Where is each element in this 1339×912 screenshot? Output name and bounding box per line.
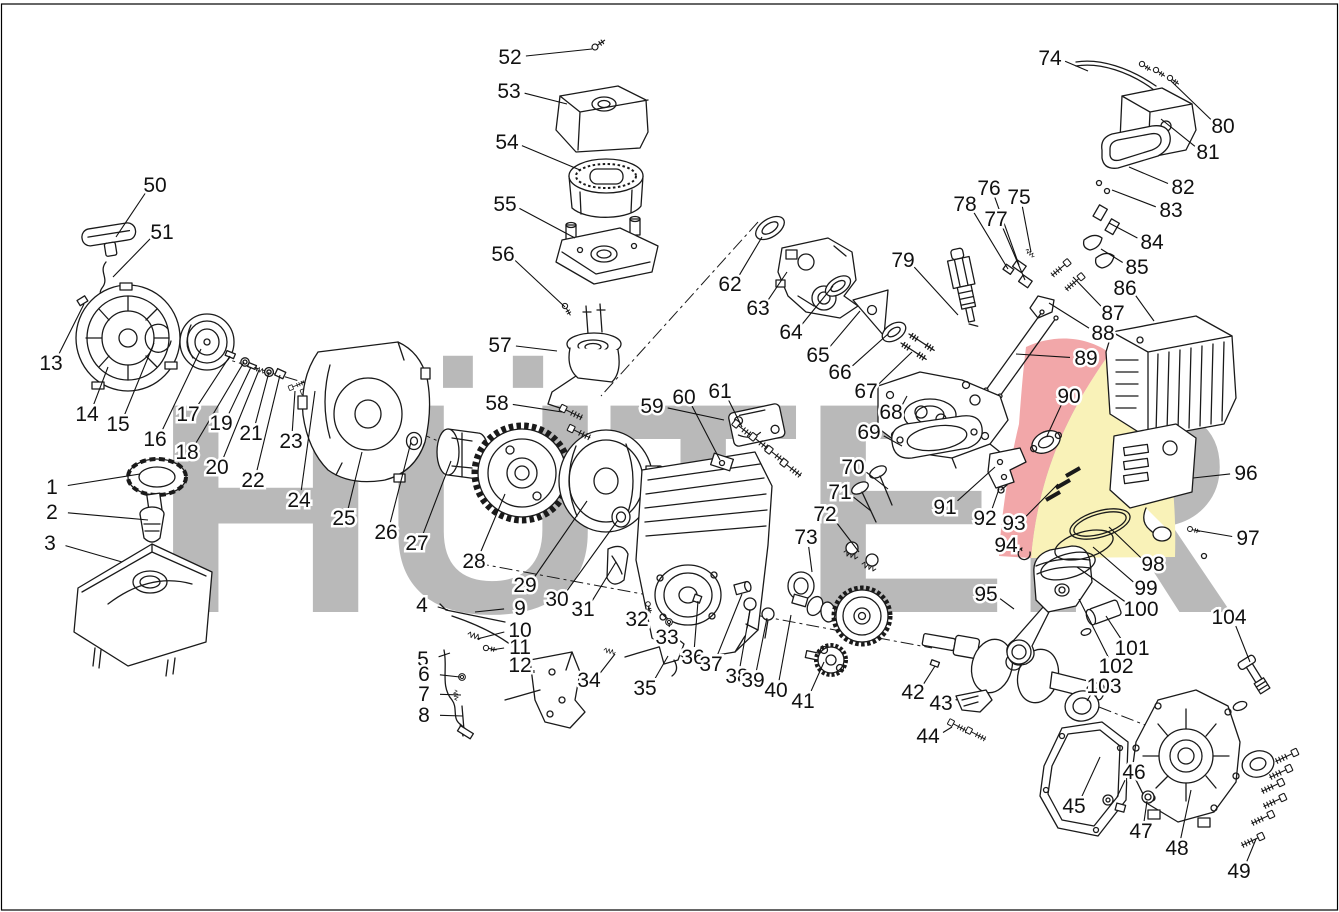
part-number-23: 23 <box>279 430 302 453</box>
part-number-8: 8 <box>418 704 430 727</box>
part-number-2: 2 <box>46 501 58 524</box>
part-number-42: 42 <box>901 681 924 704</box>
carb-gasket-drawing <box>752 212 789 245</box>
part-number-99: 99 <box>1134 577 1157 600</box>
part-number-30: 30 <box>545 588 568 611</box>
part-number-32: 32 <box>625 608 648 631</box>
exploded-diagram: HÜTER <box>0 0 1339 912</box>
part-number-79: 79 <box>891 249 914 272</box>
part-number-52: 52 <box>498 46 521 69</box>
air-filter-element-drawing <box>569 159 643 217</box>
muffler-drawing <box>1106 316 1236 438</box>
part-number-100: 100 <box>1123 598 1158 621</box>
part-number-47: 47 <box>1129 820 1152 843</box>
part-number-16: 16 <box>143 428 166 451</box>
air-filter-base-drawing <box>556 217 658 285</box>
part-number-97: 97 <box>1236 527 1259 550</box>
part-number-76: 76 <box>977 177 1000 200</box>
recoil-starter-drawing <box>76 283 180 391</box>
part-number-40: 40 <box>764 679 787 702</box>
leader-line-62 <box>739 237 762 276</box>
flywheel-nut-drawing <box>407 433 422 450</box>
part-number-29: 29 <box>513 574 536 597</box>
part-number-39: 39 <box>741 669 764 692</box>
part-number-18: 18 <box>175 441 198 464</box>
part-number-25: 25 <box>332 507 355 530</box>
cover-oil-seal-drawing <box>1239 747 1277 780</box>
leader-line-8 <box>440 715 463 716</box>
part-number-3: 3 <box>44 532 56 555</box>
parts-diagram-page: HÜTER <box>0 0 1339 912</box>
part-number-82: 82 <box>1171 176 1194 199</box>
part-number-50: 50 <box>143 174 166 197</box>
part-number-43: 43 <box>929 692 952 715</box>
part-number-64: 64 <box>779 321 803 344</box>
part-number-89: 89 <box>1074 347 1097 370</box>
part-number-61: 61 <box>708 380 731 403</box>
part-number-80: 80 <box>1211 115 1234 138</box>
part-number-17: 17 <box>176 403 199 426</box>
leader-line-52 <box>526 49 592 56</box>
part-number-75: 75 <box>1007 186 1030 209</box>
part-number-86: 86 <box>1113 277 1136 300</box>
part-number-103: 103 <box>1086 675 1121 698</box>
part-number-65: 65 <box>806 344 829 367</box>
leader-line-74 <box>1065 61 1088 71</box>
part-number-71: 71 <box>828 481 851 504</box>
part-number-26: 26 <box>374 521 397 544</box>
part-number-24: 24 <box>287 489 311 512</box>
leader-line-2 <box>68 513 148 520</box>
part-number-34: 34 <box>577 669 601 692</box>
charge-coil-drawing <box>607 546 628 584</box>
part-number-90: 90 <box>1057 385 1080 408</box>
part-number-95: 95 <box>974 583 997 606</box>
part-number-81: 81 <box>1196 141 1219 164</box>
leader-line-83 <box>1112 190 1156 207</box>
part-number-73: 73 <box>794 526 817 549</box>
part-number-74: 74 <box>1038 47 1062 70</box>
part-number-60: 60 <box>672 386 695 409</box>
part-number-55: 55 <box>493 193 516 216</box>
part-number-45: 45 <box>1062 795 1085 818</box>
air-filter-screw-drawing <box>591 38 606 51</box>
leader-line-75 <box>1022 207 1031 252</box>
part-number-62: 62 <box>718 273 741 296</box>
part-number-51: 51 <box>150 221 173 244</box>
part-number-12: 12 <box>508 654 531 677</box>
part-number-69: 69 <box>857 421 880 444</box>
part-number-70: 70 <box>841 456 864 479</box>
part-number-85: 85 <box>1125 256 1148 279</box>
part-number-104: 104 <box>1211 606 1246 629</box>
part-number-58: 58 <box>485 392 508 415</box>
starter-handle-drawing <box>81 222 139 260</box>
part-number-28: 28 <box>462 550 485 573</box>
part-number-56: 56 <box>491 243 514 266</box>
leader-line-54 <box>522 146 580 170</box>
crankcase-gasket-drawing <box>1040 722 1128 836</box>
part-number-72: 72 <box>813 503 836 526</box>
part-number-21: 21 <box>239 422 262 445</box>
part-number-63: 63 <box>746 297 769 320</box>
part-number-92: 92 <box>973 507 996 530</box>
part-number-68: 68 <box>879 401 902 424</box>
part-number-91: 91 <box>933 496 956 519</box>
leader-line-51 <box>113 239 150 277</box>
part-number-37: 37 <box>699 653 722 676</box>
part-number-4: 4 <box>416 594 428 617</box>
part-number-14: 14 <box>75 403 99 426</box>
part-number-94: 94 <box>994 534 1018 557</box>
part-number-22: 22 <box>241 469 264 492</box>
leader-line-47 <box>1144 801 1147 821</box>
part-number-15: 15 <box>106 413 129 436</box>
valve-cover-gasket-drawing <box>1102 126 1171 169</box>
leader-line-7 <box>440 694 461 695</box>
part-number-54: 54 <box>495 131 519 154</box>
part-number-48: 48 <box>1165 837 1188 860</box>
leader-line-82 <box>1129 167 1168 184</box>
part-number-35: 35 <box>633 677 656 700</box>
part-number-83: 83 <box>1159 199 1182 222</box>
part-number-96: 96 <box>1234 462 1257 485</box>
part-number-1: 1 <box>46 476 58 499</box>
part-number-98: 98 <box>1141 553 1164 576</box>
part-number-13: 13 <box>39 352 62 375</box>
leader-line-87 <box>1073 277 1101 306</box>
valve-cover-bolts-drawing <box>1138 60 1180 86</box>
leader-line-44 <box>943 727 952 733</box>
part-number-93: 93 <box>1002 512 1025 535</box>
part-number-88: 88 <box>1091 322 1114 345</box>
leader-line-43 <box>956 699 957 700</box>
part-number-27: 27 <box>405 532 428 555</box>
part-number-67: 67 <box>854 380 877 403</box>
spark-plug-drawing <box>945 247 983 330</box>
leader-line-104 <box>1236 626 1250 662</box>
part-number-20: 20 <box>205 456 228 479</box>
part-number-41: 41 <box>791 690 814 713</box>
part-number-7: 7 <box>418 683 430 706</box>
fuel-strainer-drawing <box>140 507 164 542</box>
part-number-78: 78 <box>953 193 976 216</box>
part-number-33: 33 <box>655 626 678 649</box>
part-number-59: 59 <box>640 395 663 418</box>
leader-line-56 <box>515 261 565 308</box>
part-number-19: 19 <box>209 412 232 435</box>
part-number-44: 44 <box>916 725 940 748</box>
leader-line-86 <box>1136 296 1154 322</box>
rocker-pivot-bolts-drawing <box>1030 259 1085 318</box>
rocker-arms-drawing <box>1084 181 1120 269</box>
part-number-53: 53 <box>497 80 520 103</box>
part-number-77: 77 <box>984 208 1007 231</box>
leader-line-3 <box>66 546 123 562</box>
dipstick-drawing <box>1232 654 1272 712</box>
crankcase-cover-drawing <box>1132 690 1240 827</box>
part-number-31: 31 <box>571 598 594 621</box>
part-number-66: 66 <box>828 361 851 384</box>
part-number-49: 49 <box>1227 860 1250 883</box>
part-number-46: 46 <box>1122 761 1145 784</box>
part-number-9: 9 <box>514 597 526 620</box>
part-number-84: 84 <box>1140 231 1164 254</box>
part-number-57: 57 <box>488 334 511 357</box>
air-filter-cover-drawing <box>556 86 648 152</box>
